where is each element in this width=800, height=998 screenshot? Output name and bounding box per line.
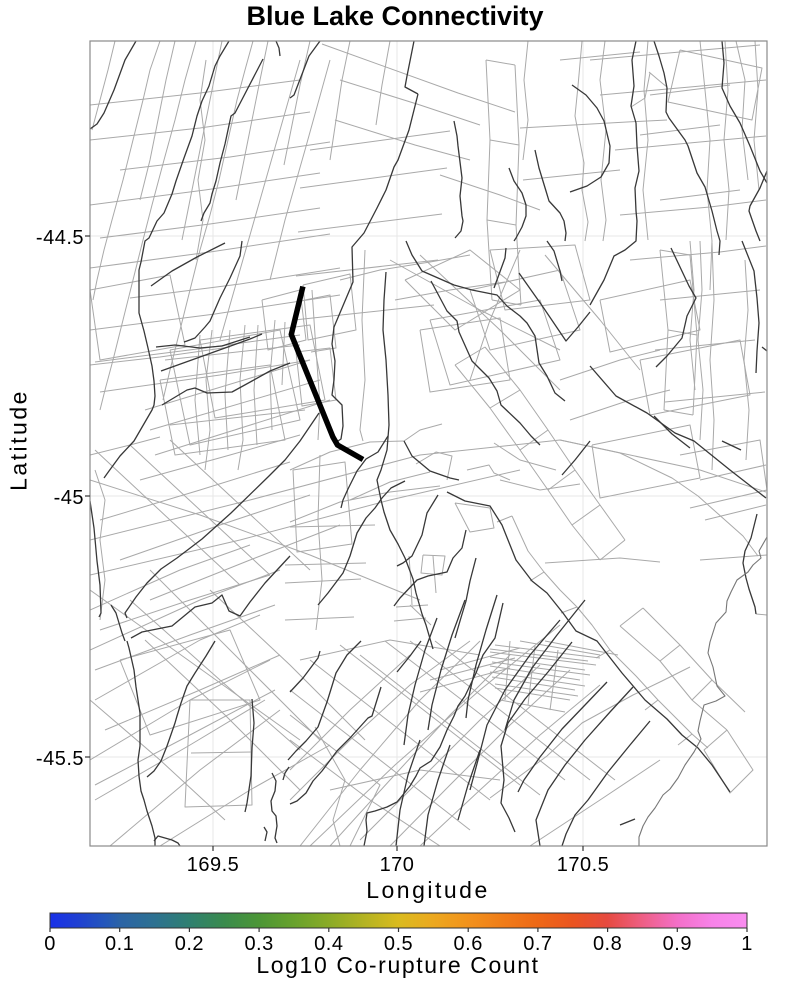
svg-text:Log10 Co-rupture Count: Log10 Co-rupture Count (256, 952, 539, 978)
svg-text:0.8: 0.8 (593, 933, 622, 955)
svg-text:-45.5: -45.5 (36, 748, 84, 770)
svg-text:Longitude: Longitude (366, 877, 490, 903)
svg-text:0: 0 (44, 933, 56, 955)
svg-text:-44.5: -44.5 (36, 227, 84, 249)
svg-text:0.9: 0.9 (663, 933, 692, 955)
svg-text:-45: -45 (54, 487, 84, 509)
svg-text:Latitude: Latitude (6, 389, 32, 491)
svg-text:170.5: 170.5 (557, 854, 610, 876)
svg-text:0.2: 0.2 (175, 933, 204, 955)
svg-text:1: 1 (741, 933, 753, 955)
svg-text:0.1: 0.1 (105, 933, 134, 955)
svg-text:Blue Lake Connectivity: Blue Lake Connectivity (246, 1, 543, 31)
svg-text:169.5: 169.5 (187, 854, 240, 876)
svg-text:170: 170 (380, 854, 415, 876)
